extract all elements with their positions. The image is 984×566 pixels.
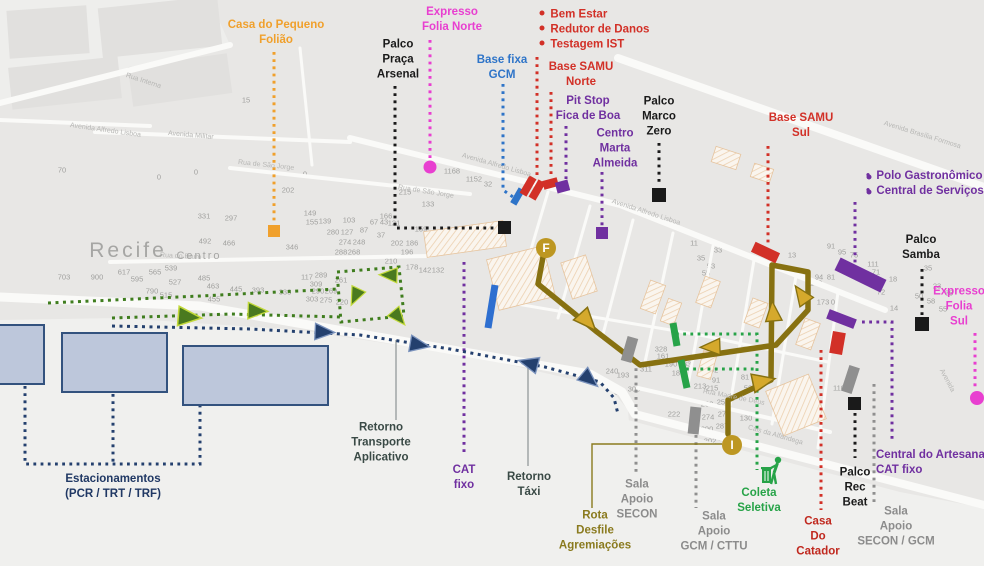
retorno-taxi-label: Retorno Táxi — [507, 470, 551, 500]
casa-pequeno-foliao-label: Casa do Pequeno Folião — [228, 18, 325, 48]
central-do-artesanato-label: Central do Artesanato CAT fixo — [876, 448, 984, 478]
retorno-transporte-aplicativo-label: Retorno Transporte Aplicativo — [351, 421, 410, 466]
centro-marta-almeida-label: Centro Marta Almeida — [593, 127, 638, 172]
palco-praca-arsenal-label: Palco Praça Arsenal — [377, 38, 419, 83]
palco-samba-label: Palco Samba — [902, 233, 940, 263]
pit-stop-fica-de-boa-label: Pit Stop Fica de Boa — [556, 94, 621, 124]
street-name-label: Cais da Alfândega — [747, 424, 804, 446]
street-name-label: Rua Madre de Deus — [702, 388, 765, 407]
casa-do-catador-label: Casa Do Catador — [796, 515, 839, 560]
saude-list-label: • Bem Estar • Redutor de Danos • Testage… — [540, 8, 649, 53]
cat-fixo-centro-label: CAT fixo — [453, 463, 476, 493]
street-name-label: Avenida Brasília Formosa — [883, 120, 962, 150]
map-labels-layer: Avenida Alfredo LisboaAvenida MilitarRua… — [0, 0, 984, 566]
coleta-seletiva-label: Coleta Seletiva — [737, 486, 780, 516]
street-name-label: Rua de São Jorge — [397, 184, 454, 200]
base-samu-sul-label: Base SAMU Sul — [769, 111, 834, 141]
street-name-label: Avenida Alfredo Lisboa — [70, 122, 142, 139]
sala-apoio-secon-label: Sala Apoio SECON — [617, 478, 658, 523]
street-name-label: Avenida — [938, 368, 956, 394]
expresso-folia-sul-label: Expresso Folia Sul — [933, 285, 984, 330]
polo-list-label: • Polo Gastronômico • Central de Serviço… — [866, 169, 984, 199]
street-name-label: Avenida Alfredo Lisboa — [461, 152, 532, 178]
street-name-label: Rua Interna — [125, 72, 162, 90]
sala-apoio-secon-gcm-label: Sala Apoio SECON / GCM — [857, 505, 934, 550]
sala-apoio-gcm-cttu-label: Sala Apoio GCM / CTTU — [680, 510, 747, 555]
street-name-label: Avenida Militar — [168, 130, 214, 141]
recife-centro-label: Centro — [176, 249, 221, 263]
recife-label: Recife — [89, 239, 167, 263]
street-name-label: Avenida Alfredo Lisboa — [611, 198, 681, 227]
carnival-map: 2022001570000202215116811523213316612125… — [0, 0, 984, 566]
palco-marco-zero-label: Palco Marco Zero — [642, 95, 676, 140]
street-name-label: Rua de São Jorge — [238, 159, 295, 172]
base-samu-norte-label: Base SAMU Norte — [549, 60, 614, 90]
expresso-folia-norte-label: Expresso Folia Norte — [422, 5, 482, 35]
base-fixa-gcm-label: Base fixa GCM — [477, 53, 528, 83]
estacionamentos-label: Estacionamentos (PCR / TRT / TRF) — [65, 472, 161, 502]
